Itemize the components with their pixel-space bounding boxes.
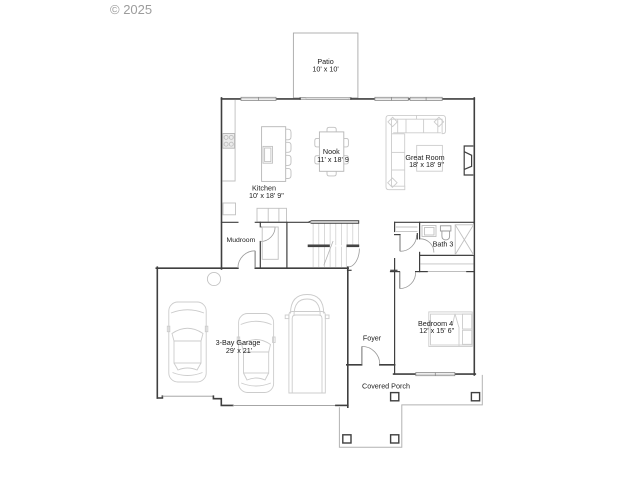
svg-text:12' x 15' 6": 12' x 15' 6" — [419, 326, 454, 335]
svg-text:Mudroom: Mudroom — [227, 237, 256, 244]
svg-text:Covered Porch: Covered Porch — [362, 381, 410, 390]
svg-text:11' x 18' 9: 11' x 18' 9 — [317, 155, 349, 164]
svg-text:© 2025: © 2025 — [110, 2, 152, 17]
svg-text:Foyer: Foyer — [363, 334, 382, 343]
svg-text:29' x 21': 29' x 21' — [226, 346, 253, 355]
svg-text:Bath 3: Bath 3 — [433, 239, 454, 248]
svg-text:10' x 18' 9": 10' x 18' 9" — [249, 191, 284, 200]
svg-text:18' x 18' 9": 18' x 18' 9" — [409, 160, 444, 169]
svg-text:10' x 10': 10' x 10' — [312, 65, 339, 74]
